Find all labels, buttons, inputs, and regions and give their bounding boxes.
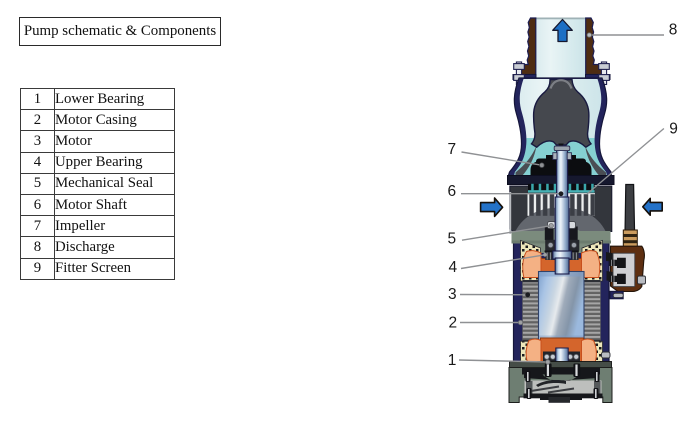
- svg-text:6: 6: [447, 183, 456, 200]
- svg-text:1: 1: [448, 352, 457, 369]
- svg-text:2: 2: [448, 314, 457, 331]
- svg-text:7: 7: [447, 141, 456, 158]
- svg-text:5: 5: [447, 230, 456, 247]
- svg-text:8: 8: [669, 22, 678, 39]
- svg-text:3: 3: [448, 286, 457, 303]
- svg-text:9: 9: [669, 121, 678, 138]
- svg-text:4: 4: [448, 259, 457, 276]
